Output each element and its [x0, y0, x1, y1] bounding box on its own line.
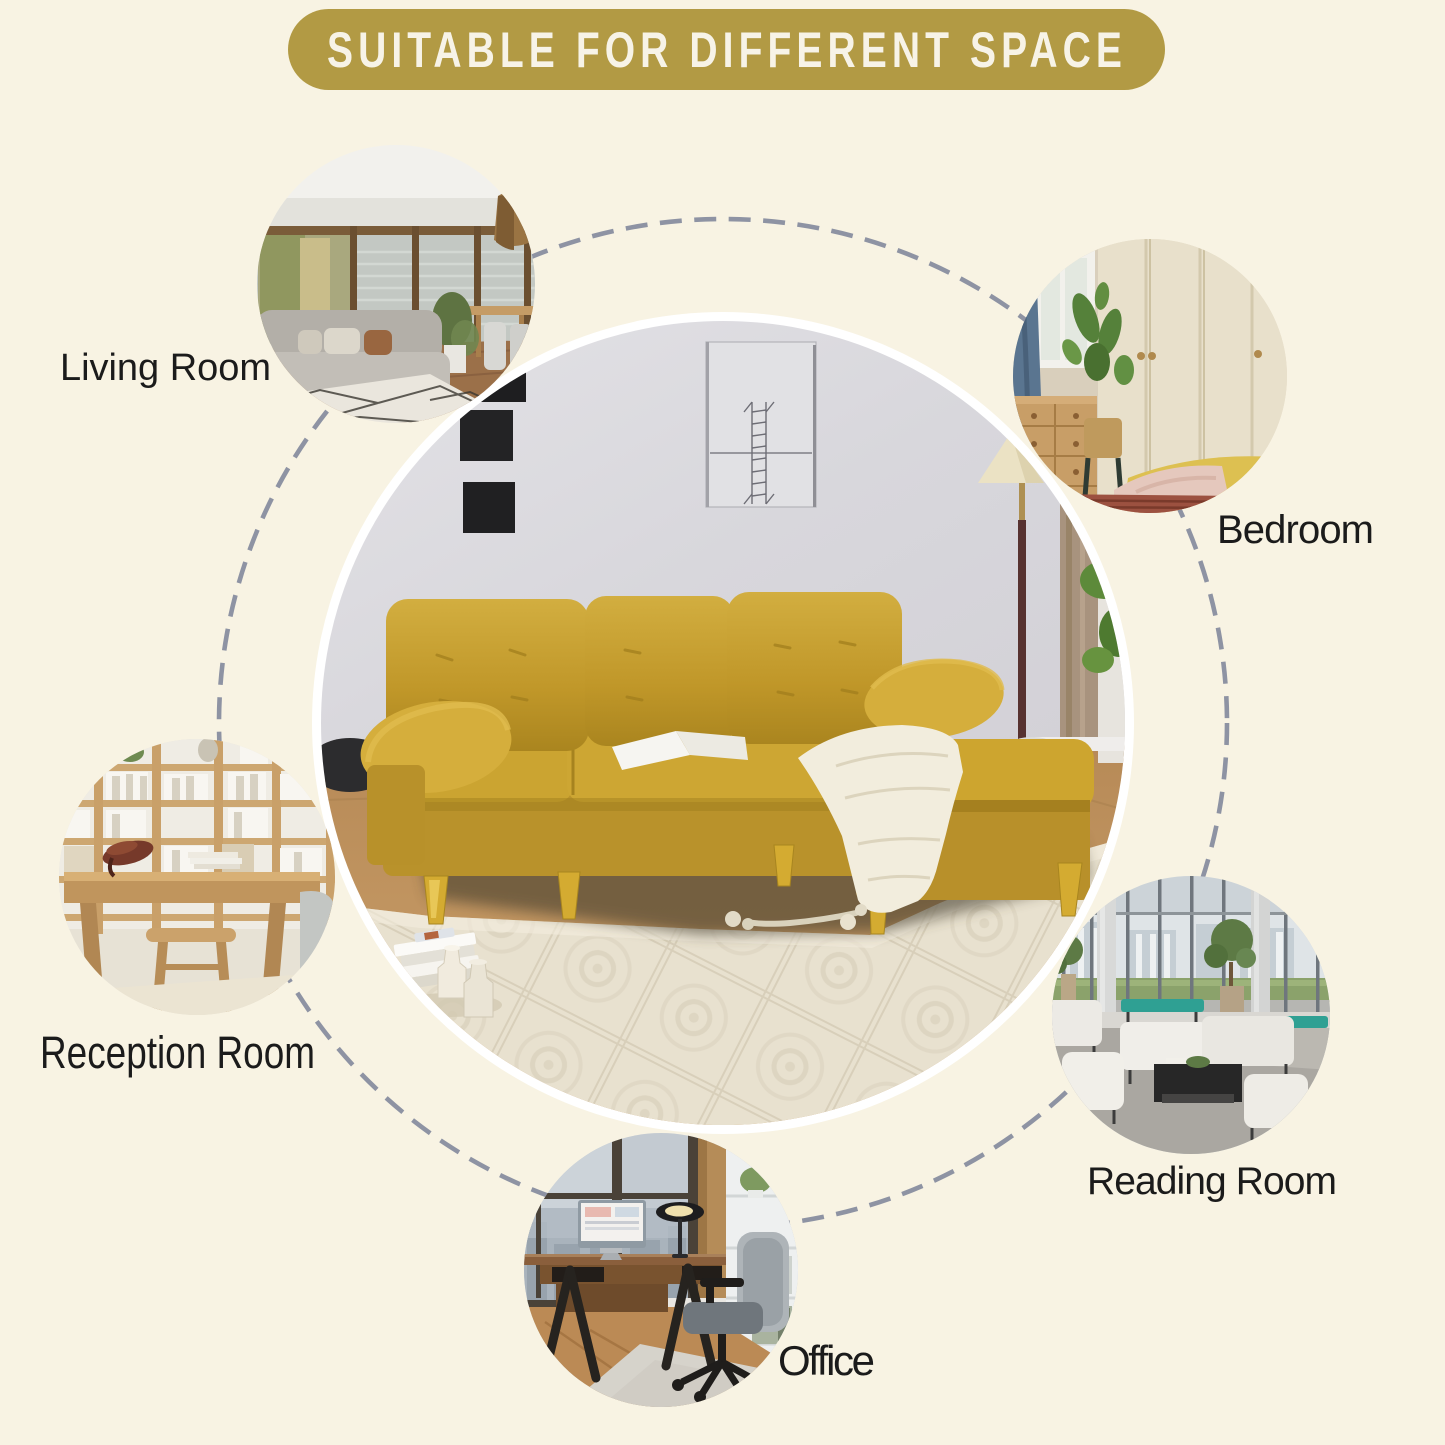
svg-text:Bedroom: Bedroom: [1217, 508, 1374, 552]
svg-text:Living Room: Living Room: [60, 347, 271, 389]
svg-text:Reading Room: Reading Room: [1087, 1160, 1337, 1203]
svg-text:Reception Room: Reception Room: [40, 1027, 315, 1078]
svg-text:SUITABLE FOR DIFFERENT SPACE: SUITABLE FOR DIFFERENT SPACE: [327, 22, 1127, 78]
svg-text:Office: Office: [778, 1337, 875, 1384]
